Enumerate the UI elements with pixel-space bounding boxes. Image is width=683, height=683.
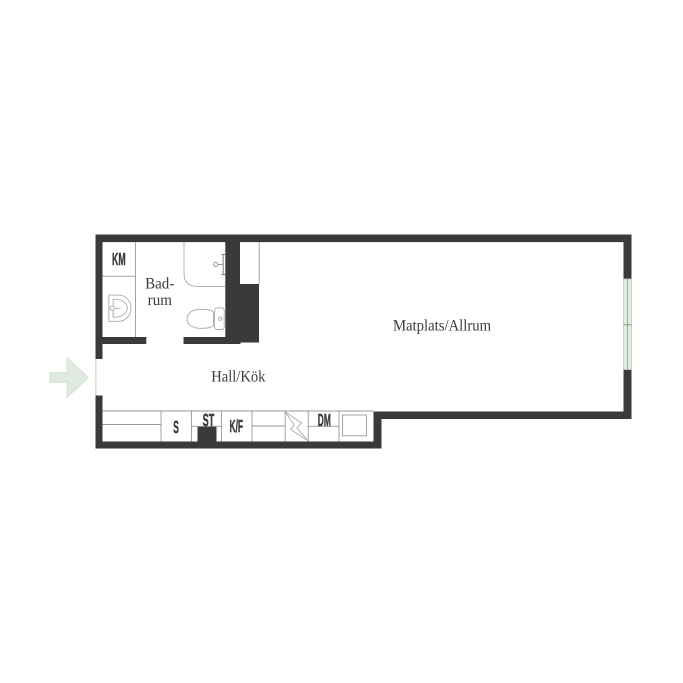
svg-text:rum: rum	[148, 292, 173, 309]
svg-text:S: S	[173, 417, 179, 437]
svg-text:DM: DM	[318, 410, 331, 430]
svg-text:K/F: K/F	[230, 416, 244, 436]
svg-text:Bad-: Bad-	[145, 276, 174, 293]
svg-text:Hall/Kök: Hall/Kök	[211, 369, 265, 386]
svg-text:KM: KM	[112, 249, 126, 269]
svg-text:Matplats/Allrum: Matplats/Allrum	[393, 317, 492, 334]
